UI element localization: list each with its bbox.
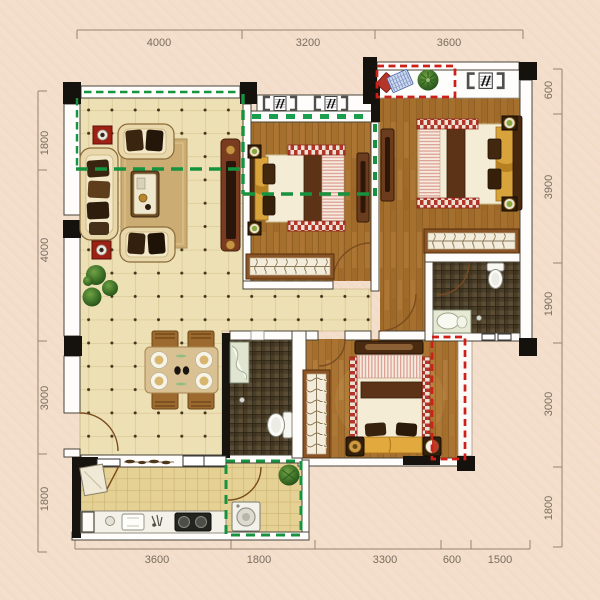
svg-text:1800: 1800 [39,131,51,155]
svg-text:1800: 1800 [247,554,271,566]
svg-text:1900: 1900 [543,292,555,316]
svg-text:4000: 4000 [39,238,51,262]
svg-text:1800: 1800 [39,487,51,511]
svg-text:4000: 4000 [147,37,171,49]
svg-text:1800: 1800 [543,496,555,520]
svg-text:3000: 3000 [543,392,555,416]
svg-text:3300: 3300 [373,554,397,566]
svg-text:600: 600 [443,554,461,566]
svg-text:3000: 3000 [39,386,51,410]
svg-text:3600: 3600 [145,554,169,566]
svg-text:1500: 1500 [488,554,512,566]
svg-text:3900: 3900 [543,175,555,199]
svg-text:3600: 3600 [437,37,461,49]
svg-text:600: 600 [543,81,555,99]
svg-text:3200: 3200 [296,37,320,49]
